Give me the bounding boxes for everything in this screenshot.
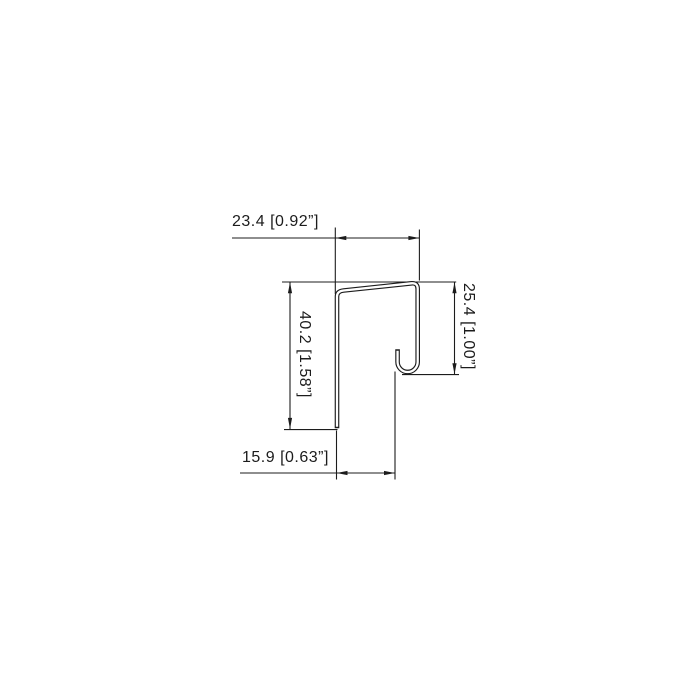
profile-outline bbox=[337, 283, 418, 428]
dim-label-left-height: 40.2 [1.58”] bbox=[295, 311, 313, 398]
dimension-arrowheads bbox=[288, 236, 457, 475]
profile-outline-outer bbox=[337, 283, 418, 428]
arrowhead-right-up bbox=[452, 282, 456, 293]
dimension-lines bbox=[232, 228, 459, 480]
arrowhead-top-right bbox=[408, 236, 419, 240]
profile-drawing bbox=[0, 0, 700, 700]
arrowhead-top-left bbox=[335, 236, 346, 240]
dim-label-right-height: 25.4 [1.00”] bbox=[459, 283, 477, 370]
arrowhead-right-down bbox=[452, 363, 456, 374]
drawing-canvas: 23.4 [0.92”] 40.2 [1.58”] 25.4 [1.00”] 1… bbox=[0, 0, 700, 700]
dim-label-bottom-width: 15.9 [0.63”] bbox=[242, 449, 329, 467]
arrowhead-left-up bbox=[288, 282, 292, 293]
profile-outline-core bbox=[337, 283, 418, 427]
arrowhead-bottom-right bbox=[384, 471, 395, 475]
arrowhead-bottom-left bbox=[337, 471, 348, 475]
arrowhead-left-down bbox=[288, 418, 292, 429]
dim-label-top-width: 23.4 [0.92”] bbox=[232, 213, 319, 231]
